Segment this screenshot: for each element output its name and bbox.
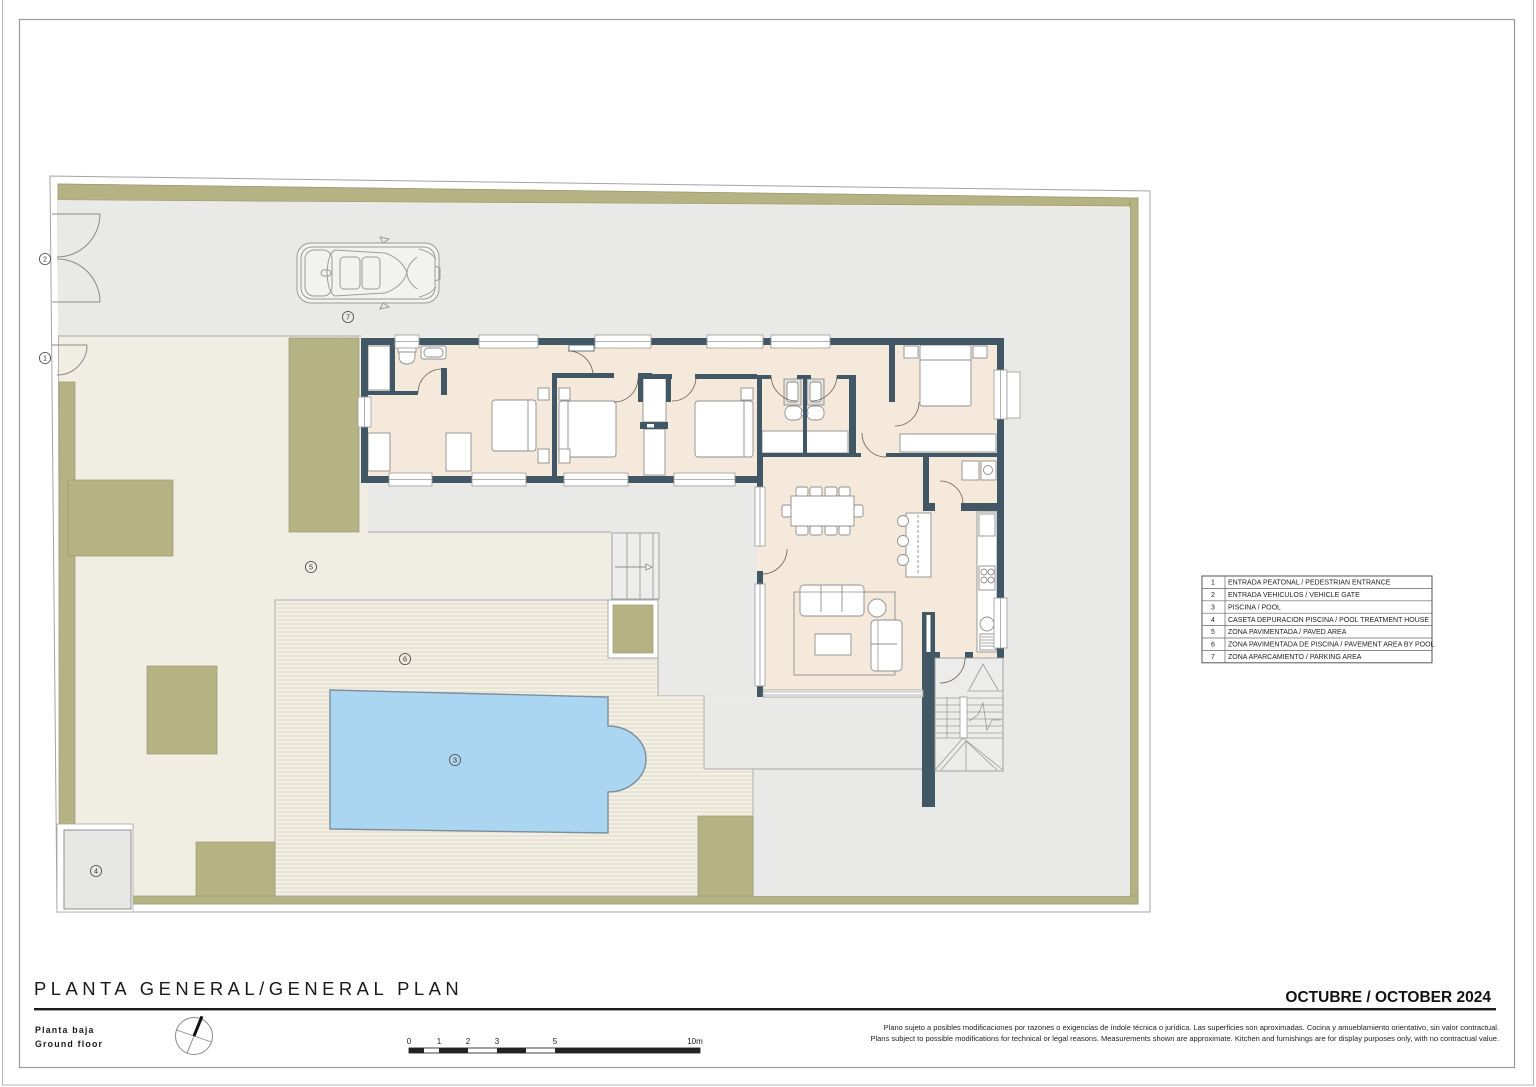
svg-text:CASETA DEPURACION PISCINA / PO: CASETA DEPURACION PISCINA / POOL TREATME… bbox=[1228, 617, 1429, 624]
svg-text:PISCINA / POOL: PISCINA / POOL bbox=[1228, 604, 1281, 611]
svg-text:4: 4 bbox=[1211, 617, 1215, 624]
svg-text:5: 5 bbox=[1211, 629, 1215, 636]
svg-text:PLANTA GENERAL/GENERAL PLAN: PLANTA GENERAL/GENERAL PLAN bbox=[34, 978, 463, 999]
svg-text:3: 3 bbox=[1211, 604, 1215, 611]
svg-text:1: 1 bbox=[1211, 580, 1215, 587]
svg-text:ENTRADA PEATONAL / PEDESTRIAN: ENTRADA PEATONAL / PEDESTRIAN ENTRANCE bbox=[1228, 580, 1391, 587]
svg-text:5: 5 bbox=[309, 563, 313, 572]
svg-text:3: 3 bbox=[453, 756, 457, 765]
svg-text:Plano sujeto a posibles modifi: Plano sujeto a posibles modificaciones p… bbox=[884, 1023, 1499, 1032]
svg-text:7: 7 bbox=[1211, 654, 1215, 661]
svg-text:7: 7 bbox=[346, 313, 350, 322]
svg-text:Ground floor: Ground floor bbox=[35, 1039, 103, 1049]
svg-text:2: 2 bbox=[466, 1037, 471, 1046]
svg-text:Planta baja: Planta baja bbox=[35, 1025, 95, 1035]
svg-text:4: 4 bbox=[94, 867, 98, 876]
svg-text:2: 2 bbox=[1211, 592, 1215, 599]
svg-text:1: 1 bbox=[437, 1037, 442, 1046]
svg-text:0: 0 bbox=[407, 1037, 412, 1046]
svg-text:3: 3 bbox=[495, 1037, 500, 1046]
svg-text:ENTRADA VEHICULOS / VEHICLE GA: ENTRADA VEHICULOS / VEHICLE GATE bbox=[1228, 592, 1360, 599]
svg-text:6: 6 bbox=[403, 655, 407, 664]
svg-text:ZONA PAVIMENTADA DE PISCINA /: ZONA PAVIMENTADA DE PISCINA / PAVEMENT A… bbox=[1228, 642, 1435, 649]
svg-text:ZONA PAVIMENTADA / PAVED AREA: ZONA PAVIMENTADA / PAVED AREA bbox=[1228, 629, 1347, 636]
svg-text:6: 6 bbox=[1211, 642, 1215, 649]
svg-text:OCTUBRE / OCTOBER 2024: OCTUBRE / OCTOBER 2024 bbox=[1285, 989, 1491, 1006]
svg-text:Plans subject to possible modi: Plans subject to possible modifications … bbox=[870, 1034, 1499, 1043]
svg-text:10m: 10m bbox=[687, 1037, 703, 1046]
svg-text:2: 2 bbox=[43, 255, 47, 264]
svg-text:5: 5 bbox=[553, 1037, 558, 1046]
svg-text:1: 1 bbox=[43, 354, 47, 363]
svg-text:ZONA APARCAMIENTO / PARKING AR: ZONA APARCAMIENTO / PARKING AREA bbox=[1228, 654, 1362, 661]
